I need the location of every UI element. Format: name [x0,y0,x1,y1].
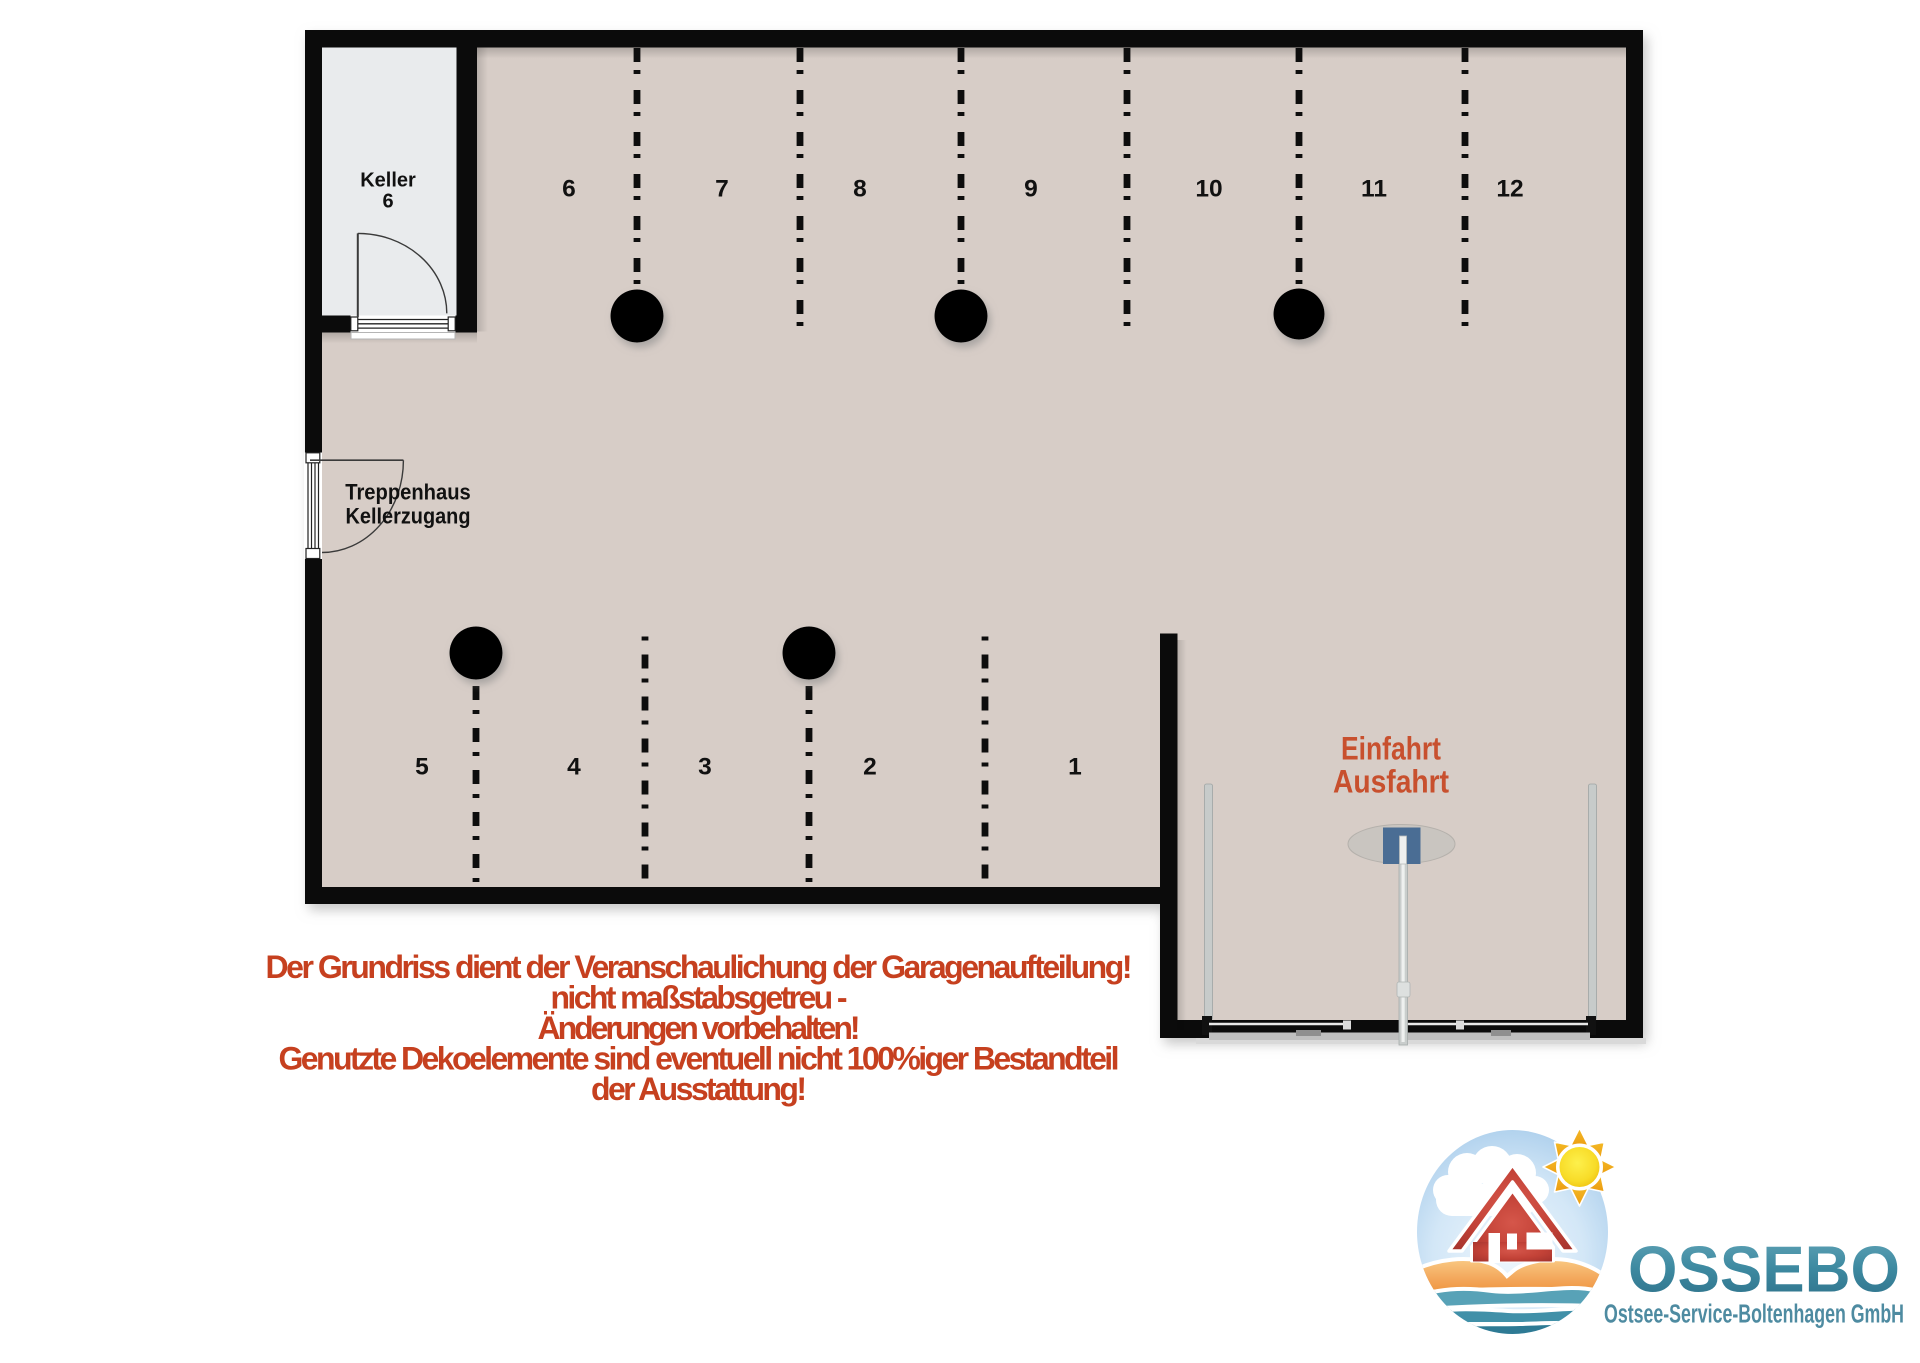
svg-text:der Ausstattung!: der Ausstattung! [591,1071,807,1107]
svg-text:Keller: Keller [360,170,416,192]
svg-text:Ostsee-Service-Boltenhagen Gmb: Ostsee-Service-Boltenhagen GmbH [1604,1299,1904,1329]
svg-text:3: 3 [698,754,712,781]
svg-text:10: 10 [1195,176,1222,203]
svg-text:7: 7 [715,176,729,203]
svg-text:1: 1 [1068,754,1082,781]
svg-text:2: 2 [863,754,877,781]
svg-text:Einfahrt: Einfahrt [1341,731,1441,767]
svg-text:OSSEBO: OSSEBO [1628,1233,1900,1306]
svg-text:9: 9 [1024,176,1038,203]
svg-text:Treppenhaus: Treppenhaus [345,480,471,505]
svg-text:6: 6 [562,176,576,203]
svg-text:12: 12 [1496,176,1523,203]
svg-text:11: 11 [1361,176,1387,203]
svg-text:4: 4 [567,754,581,781]
svg-text:6: 6 [382,191,393,213]
svg-text:Ausfahrt: Ausfahrt [1333,764,1449,800]
svg-text:8: 8 [853,176,867,203]
svg-text:5: 5 [415,754,429,781]
svg-text:Kellerzugang: Kellerzugang [346,504,471,529]
